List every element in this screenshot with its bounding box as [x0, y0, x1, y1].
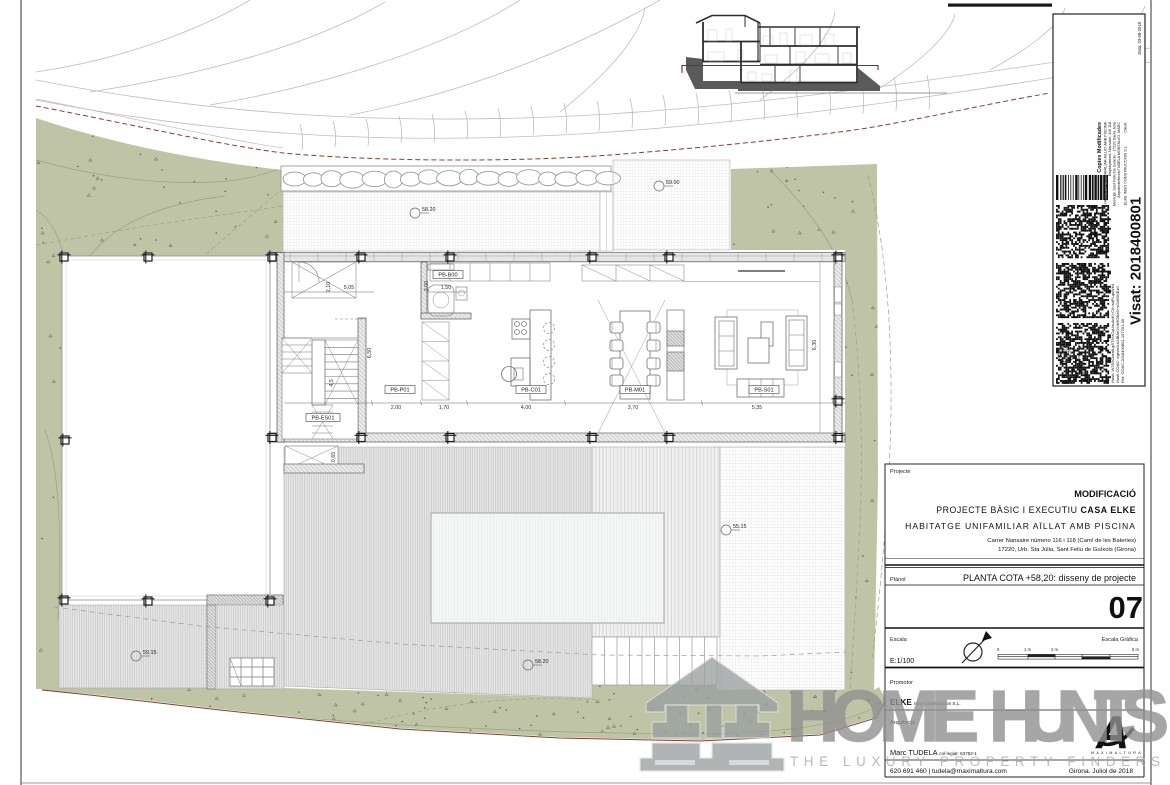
svg-text:Col·legi d´Arquitectes: Col·legi d´Arquitectes — [1077, 342, 1081, 375]
svg-text:THE LUXURY PROPERTY FINDERS: THE LUXURY PROPERTY FINDERS — [790, 754, 1168, 769]
svg-text:5,05: 5,05 — [344, 285, 355, 291]
svg-text:1,50: 1,50 — [441, 285, 452, 291]
svg-text:Projecte: Projecte — [890, 469, 911, 475]
svg-text:5 m: 5 m — [1132, 647, 1139, 652]
svg-text:4,00: 4,00 — [521, 405, 532, 411]
svg-text:55.15: 55.15 — [733, 524, 747, 530]
svg-text:PB-ES01: PB-ES01 — [311, 416, 334, 422]
svg-text:PROJECTE BÀSIC I EXECUTIU CASA: PROJECTE BÀSIC I EXECUTIU CASA ELKE — [936, 505, 1136, 515]
svg-text:2,10: 2,10 — [326, 282, 332, 293]
svg-text:0,65: 0,65 — [331, 452, 337, 463]
svg-text:Carrer Nansaire número 116 i 1: Carrer Nansaire número 116 i 118 (Camí d… — [987, 538, 1136, 544]
svg-text:PB-P01: PB-P01 — [390, 388, 409, 394]
svg-text:Ref: COAC-2018400801-15T201-05: Ref: COAC-2018400801-15T201-05 — [1120, 318, 1125, 383]
svg-text:2,00: 2,00 — [424, 281, 430, 292]
svg-text:Emplaçament: Nansaire, 116 118: Emplaçament: Nansaire, 116 118 — [1108, 122, 1112, 176]
svg-text:Arquitecte/tècnicTUDELA MONTAL: Arquitecte/tècnicTUDELA MONTALVO, MARC — [1117, 122, 1121, 198]
svg-text:Municipi: Sant Feliu De Guixol: Municipi: Sant Feliu De Guixols - 17220 … — [1113, 121, 1117, 206]
svg-text:MODIFICACIÓ: MODIFICACIÓ — [1074, 488, 1136, 499]
svg-text:59.15: 59.15 — [143, 650, 157, 656]
svg-text:Escala Gràfica: Escala Gràfica — [1102, 637, 1139, 643]
svg-text:58.20: 58.20 — [422, 207, 436, 213]
svg-text:2 m: 2 m — [1051, 647, 1058, 652]
svg-text:4,5: 4,5 — [329, 379, 335, 387]
svg-text:de Catalunya: de Catalunya — [1082, 355, 1086, 375]
svg-text:6,50: 6,50 — [367, 348, 373, 359]
svg-text:Girona. Juliol de 2018: Girona. Juliol de 2018 — [1069, 768, 1133, 775]
svg-text:Plànol: Plànol — [890, 577, 906, 583]
svg-text:Escala: Escala — [890, 637, 908, 643]
svg-text:Visat: 2018400801: Visat: 2018400801 — [1128, 197, 1145, 325]
svg-text:PB-M01: PB-M01 — [625, 388, 645, 394]
svg-text:PB-B00: PB-B00 — [438, 273, 457, 279]
svg-text:PB-C01: PB-C01 — [521, 388, 541, 394]
svg-text:1,70: 1,70 — [439, 405, 450, 411]
svg-text:07: 07 — [1109, 590, 1143, 625]
svg-text:2,00: 2,00 — [391, 405, 402, 411]
svg-text:Copies Modificades: Copies Modificades — [1097, 122, 1103, 173]
svg-text:PLANTA COTA +58,20: disseny de: PLANTA COTA +58,20: disseny de projecte — [963, 573, 1136, 583]
svg-text:59.00: 59.00 — [666, 180, 680, 186]
svg-text:Data: 03-08-2018: Data: 03-08-2018 — [1137, 21, 1142, 54]
svg-text:HOME: HOME — [787, 677, 979, 757]
svg-text:HUNTS: HUNTS — [989, 677, 1169, 757]
svg-text:ELKE INNO CONSTRUCCION S.L: ELKE INNO CONSTRUCCION S.L — [1124, 146, 1128, 205]
svg-text:1 m: 1 m — [1024, 647, 1031, 652]
svg-text:620 691 460 | tudela@maximaltu: 620 691 460 | tudela@maximaltura.com — [890, 768, 1007, 775]
svg-text:E:1/100: E:1/100 — [890, 658, 914, 665]
svg-text:PB-S01: PB-S01 — [754, 388, 773, 394]
svg-text:5,35: 5,35 — [752, 405, 763, 411]
svg-text:HABITATGE UNIFAMILIAR AÏLLAT A: HABITATGE UNIFAMILIAR AÏLLAT AMB PISCINA — [905, 521, 1136, 531]
svg-text:3,70: 3,70 — [628, 405, 639, 411]
svg-text:Client:: Client: — [1124, 122, 1128, 133]
svg-text:17220, Urb. Sta Júlia, Sant Fe: 17220, Urb. Sta Júlia, Sant Feliu de Guí… — [998, 547, 1136, 553]
svg-text:6,30: 6,30 — [812, 340, 818, 351]
svg-text:58.20: 58.20 — [535, 659, 549, 665]
